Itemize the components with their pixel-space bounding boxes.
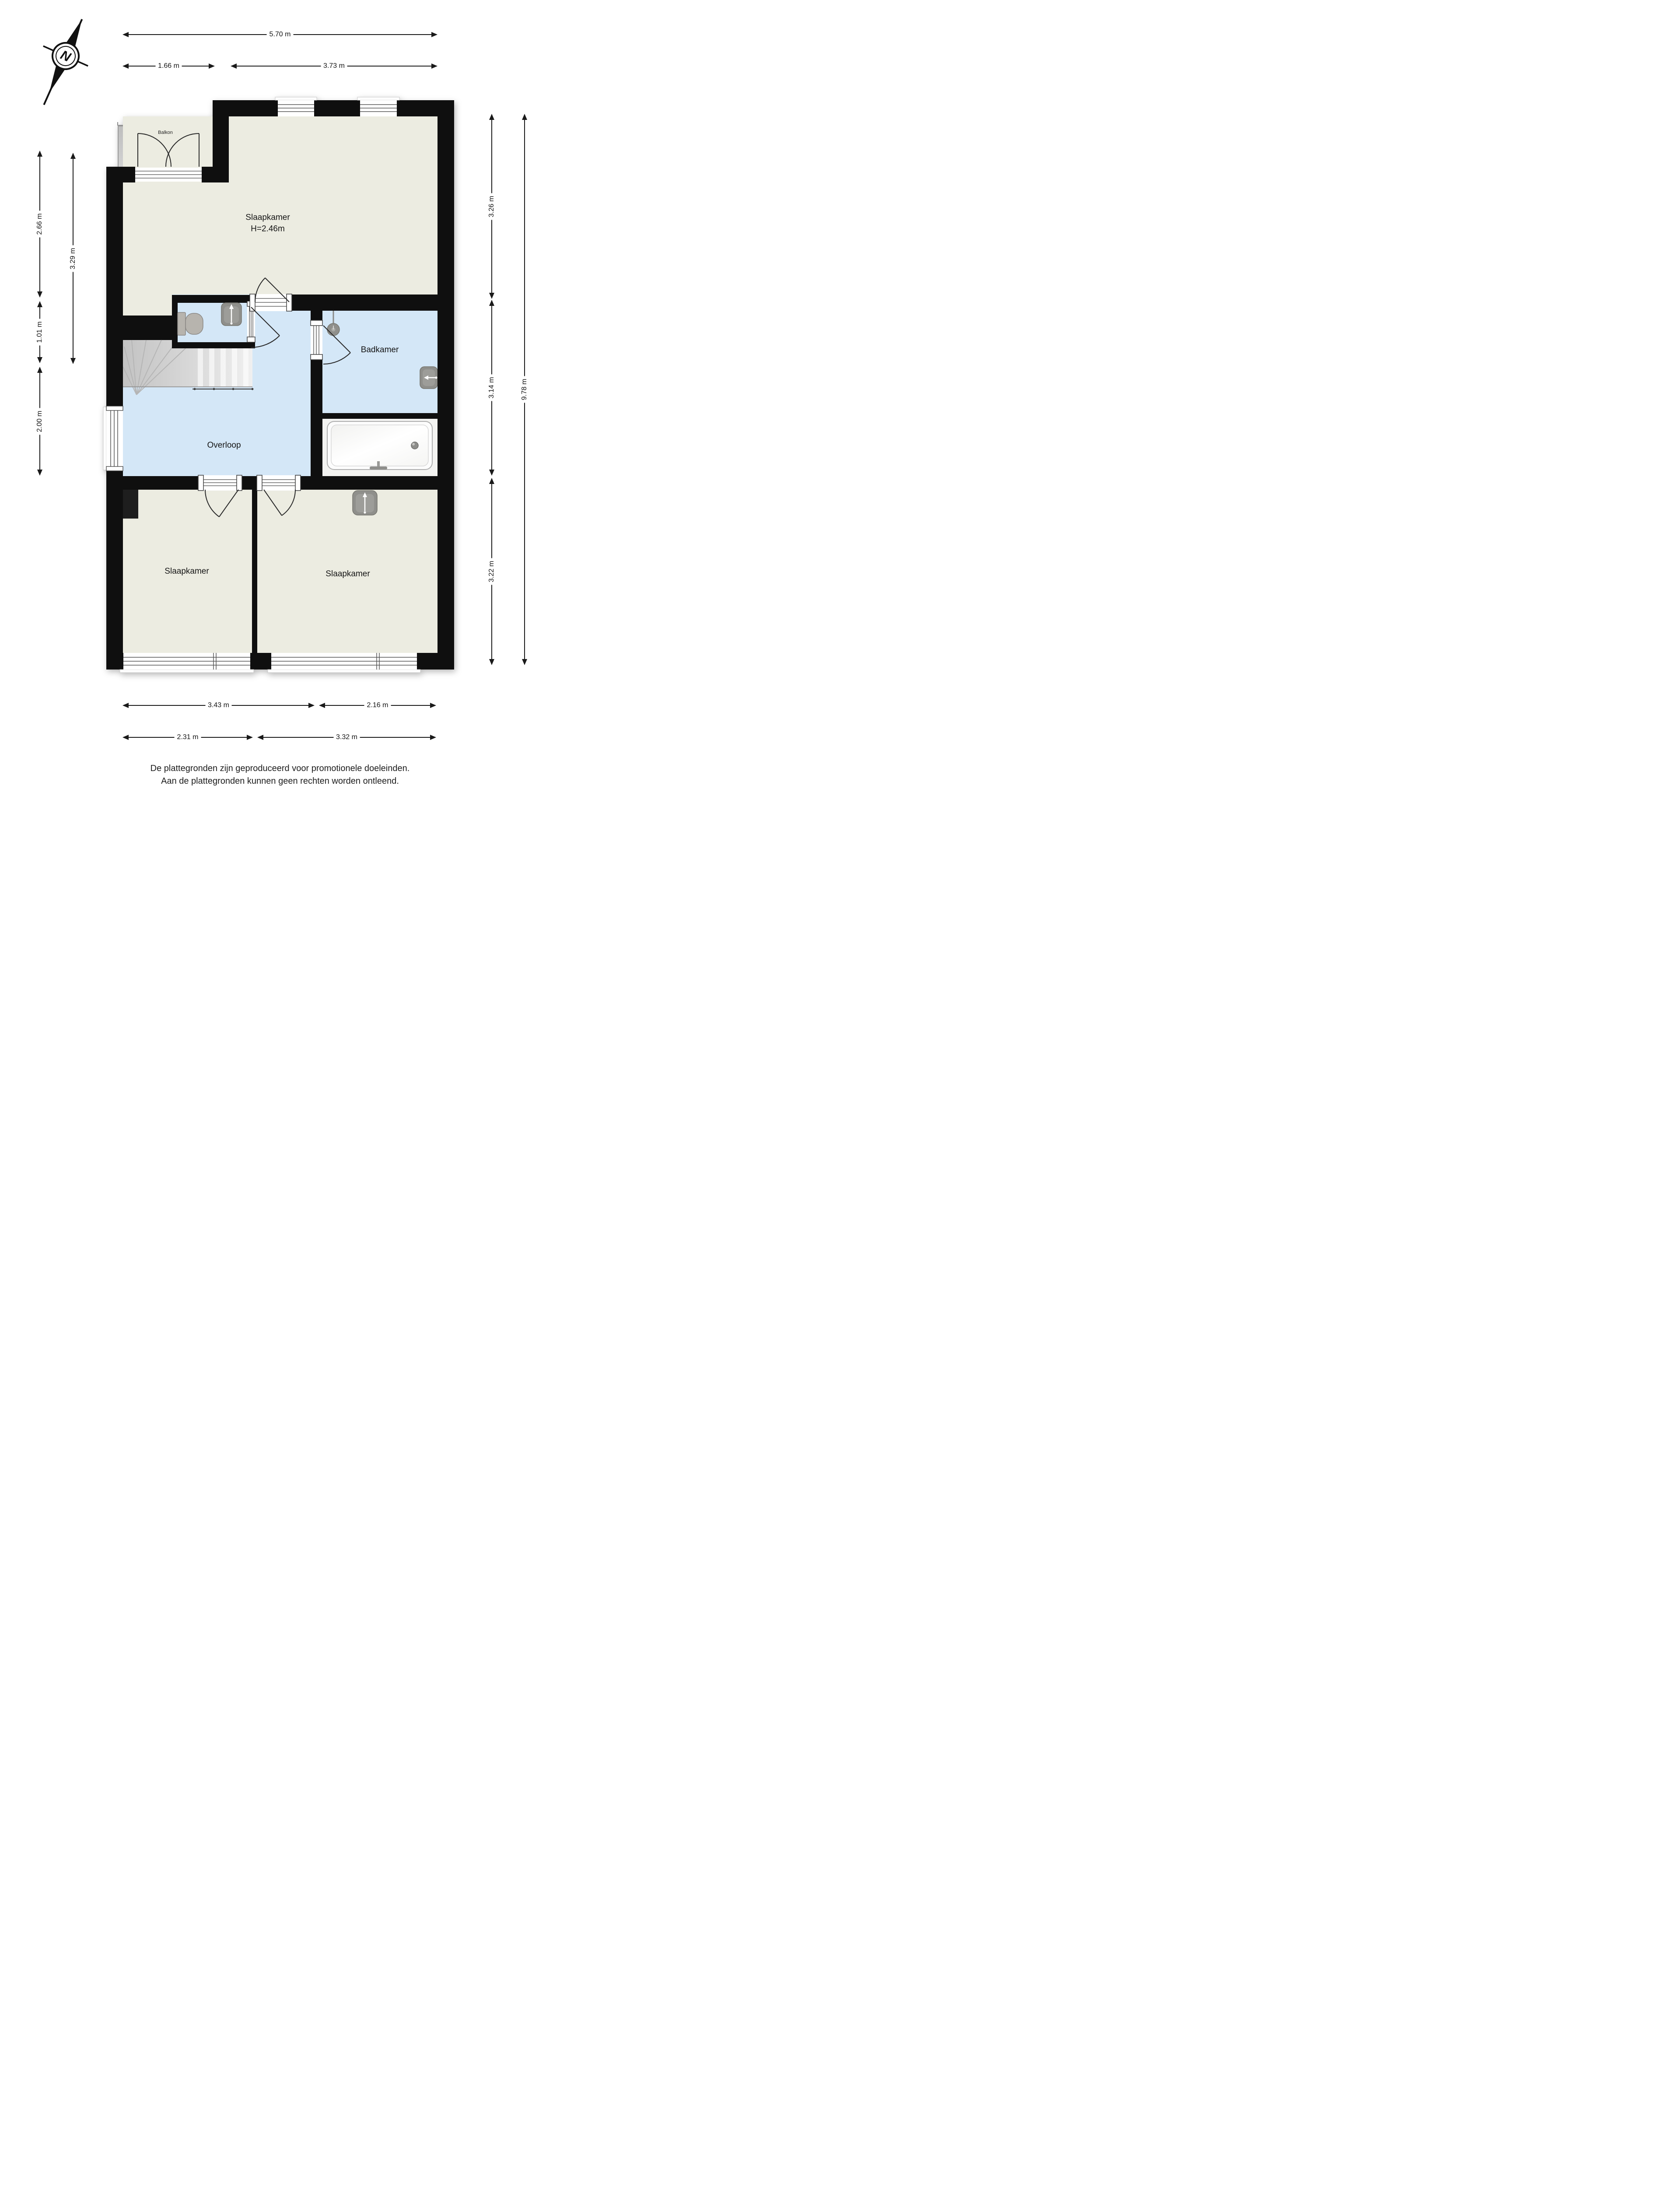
wc-sink-icon [221, 303, 241, 326]
wc-room [172, 297, 255, 348]
bedroom-main-height: H=2.46m [245, 223, 290, 235]
dim-top-right: 3.73 m [231, 66, 437, 67]
disclaimer-line1: De plattegronden zijn geproduceerd voor … [0, 762, 560, 775]
bathroom-sink-icon [420, 367, 437, 389]
dim-left-inner: 3.29 m [73, 154, 73, 363]
balcony-label: Balkon [158, 130, 173, 135]
bathtub-icon [327, 421, 432, 470]
dim-right-middle: 3.14 m [491, 301, 492, 475]
dim-bottom-row1-right: 2.16 m [320, 705, 435, 706]
dim-bottom-row2-right: 3.32 m [258, 737, 435, 738]
floor-plan-drawing [0, 0, 560, 792]
compass-icon: N [24, 15, 112, 107]
dim-right-lower: 3.22 m [491, 479, 492, 664]
dim-left-middle: 1.01 m [39, 302, 40, 362]
wall [252, 490, 257, 653]
bedroom-right-label: Slaapkamer [325, 568, 370, 580]
bedroom-main-name: Slaapkamer [245, 212, 290, 223]
dim-right-upper: 3.26 m [491, 115, 492, 298]
dim-bottom-row2-left: 2.31 m [123, 737, 252, 738]
floor-plan [0, 0, 560, 792]
disclaimer: De plattegronden zijn geproduceerd voor … [0, 762, 560, 788]
bathroom-wall-door [311, 295, 322, 476]
bedroom-main-label: Slaapkamer H=2.46m [245, 212, 290, 234]
wall [322, 413, 437, 419]
dim-right-total: 9.78 m [524, 115, 525, 664]
toilet-icon [178, 312, 203, 335]
bathroom-floor [322, 311, 437, 413]
dim-left-upper: 2.66 m [39, 151, 40, 297]
built-in-block [123, 490, 138, 519]
bathroom-label: Badkamer [361, 344, 399, 356]
floor-plan-page: N Balkon Slaapkamer H=2.46m Badkamer Ove… [0, 0, 560, 792]
bedroom-sink-icon [353, 491, 377, 515]
bedroom-left-label: Slaapkamer [164, 566, 209, 577]
disclaimer-line2: Aan de plattegronden kunnen geen rechten… [0, 775, 560, 788]
dim-left-lower: 2.00 m [39, 368, 40, 475]
landing-label: Overloop [207, 440, 241, 451]
dim-top-total: 5.70 m [123, 34, 437, 35]
dim-top-left: 1.66 m [123, 66, 214, 67]
dim-bottom-row1-left: 3.43 m [123, 705, 314, 706]
